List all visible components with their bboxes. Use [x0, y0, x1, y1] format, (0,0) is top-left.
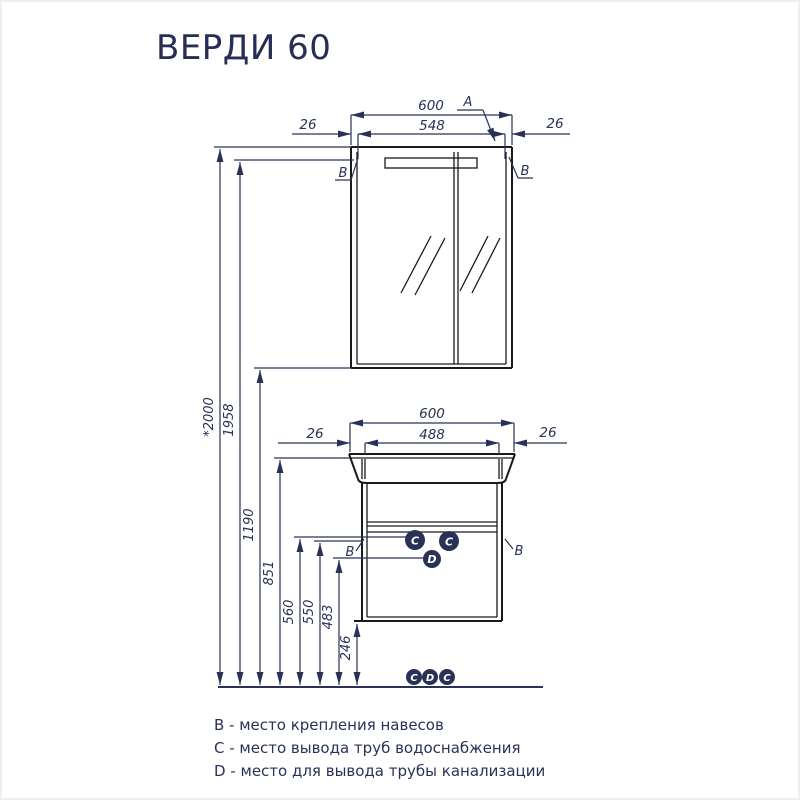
- mirror-mount-b-right: B: [521, 164, 530, 179]
- dim-basin-top-height: 851: [262, 561, 277, 586]
- dim-water-supply-height: 560: [282, 600, 297, 625]
- legend: B - место крепления навесов C - место вы…: [214, 714, 545, 783]
- washbasin-outline: [349, 454, 515, 483]
- mirror-glass-hatch: [401, 236, 500, 295]
- water-supply-letter-right: C: [445, 536, 453, 549]
- floor-markers: C D C: [406, 669, 455, 685]
- water-supply-letter-left: C: [411, 535, 419, 548]
- drain-letter: D: [427, 553, 436, 566]
- dim-mirror-offset-right: 26: [546, 116, 563, 132]
- legend-item-d: D - место для вывода трубы канализации: [214, 760, 545, 783]
- pipe-markers: C C D: [405, 530, 459, 568]
- dim-cabinet-bottom-height: 246: [339, 636, 354, 661]
- dim-mirror-bottom-height: 1190: [242, 508, 257, 541]
- dim-cabinet-mount-height: 550: [302, 600, 317, 625]
- page: ВЕРДИ 60: [0, 0, 800, 800]
- vanity-mount-b-right: B: [515, 544, 524, 559]
- dim-vanity-inner-width: 488: [419, 427, 445, 443]
- dim-vanity-offset-right: 26: [539, 425, 556, 441]
- dim-overall-height: *2000: [202, 397, 217, 437]
- mirror-mount-b-left: B: [339, 166, 348, 181]
- floor-marker-c-right-letter: C: [443, 673, 451, 684]
- floor-marker-d-letter: D: [426, 673, 434, 684]
- dim-mirror-mount-spacing: 548: [419, 118, 445, 134]
- legend-item-c: C - место вывода труб водоснабжения: [214, 737, 545, 760]
- technical-drawing: *2000 1958 1190 851 560 550 483 246 600 …: [2, 2, 800, 800]
- dim-vanity-overall-width: 600: [419, 406, 445, 422]
- vanity-mount-b-left: B: [346, 545, 355, 560]
- dim-mirror-overall-width: 600: [418, 98, 444, 114]
- dim-drain-height: 483: [321, 605, 336, 630]
- dim-mirror-top-height: 1958: [222, 403, 237, 436]
- dim-vanity-offset-left: 26: [306, 426, 323, 442]
- floor-marker-c-left-letter: C: [410, 673, 418, 684]
- mirror-cabinet-outline: [351, 147, 512, 368]
- dim-mirror-offset-left: 26: [299, 117, 316, 133]
- height-dimension-lines: [214, 147, 424, 685]
- detail-a-label: A: [463, 95, 473, 110]
- legend-item-b: B - место крепления навесов: [214, 714, 545, 737]
- height-dimension-labels: *2000 1958 1190 851 560 550 483 246: [202, 397, 354, 660]
- light-fixture: [385, 158, 477, 168]
